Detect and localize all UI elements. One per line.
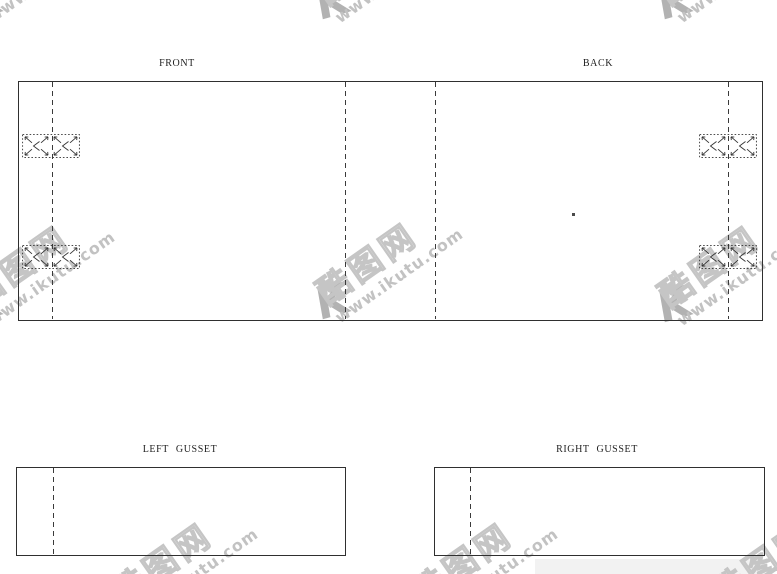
kutu-logo-icon: K [0, 0, 4, 27]
left-gusset-label: LEFT GUSSET [110, 444, 250, 455]
kutu-logo-icon: K [313, 0, 352, 27]
vent-mark-top-right [699, 134, 757, 158]
watermark-band [535, 559, 765, 574]
fold-line-front-back-2 [435, 82, 436, 319]
fold-line-right-gusset [470, 468, 471, 554]
main-body-outline [18, 81, 763, 321]
left-gusset-outline [16, 467, 346, 556]
watermark-brand: 酷图网 [310, 0, 463, 12]
watermark-brand: 酷图网 [0, 0, 115, 12]
vent-mark-bottom-right [699, 245, 757, 269]
fold-line-front-left [52, 82, 53, 319]
front-panel-label: FRONT [107, 58, 247, 69]
vent-mark-top-left [22, 134, 80, 158]
dieline-drawing-canvas: K 酷图网 www.ikutu.com K 酷图网 www.ikutu.com … [0, 0, 777, 574]
fold-line-left-gusset [53, 468, 54, 554]
watermark-brand: 酷图网 [652, 0, 777, 12]
kutu-logo-icon: K [0, 280, 4, 331]
back-panel-label: BACK [528, 58, 668, 69]
reference-point-dot [572, 213, 575, 216]
vent-mark-bottom-left [22, 245, 80, 269]
watermark-url: www.ikutu.com [674, 0, 777, 27]
kutu-logo-icon: K [655, 0, 694, 27]
watermark-url: www.ikutu.com [332, 0, 473, 27]
right-gusset-outline [434, 467, 765, 556]
fold-line-front-back-1 [345, 82, 346, 319]
right-gusset-label: RIGHT GUSSET [527, 444, 667, 455]
fold-line-back-right [728, 82, 729, 319]
watermark-url: www.ikutu.com [0, 0, 125, 27]
